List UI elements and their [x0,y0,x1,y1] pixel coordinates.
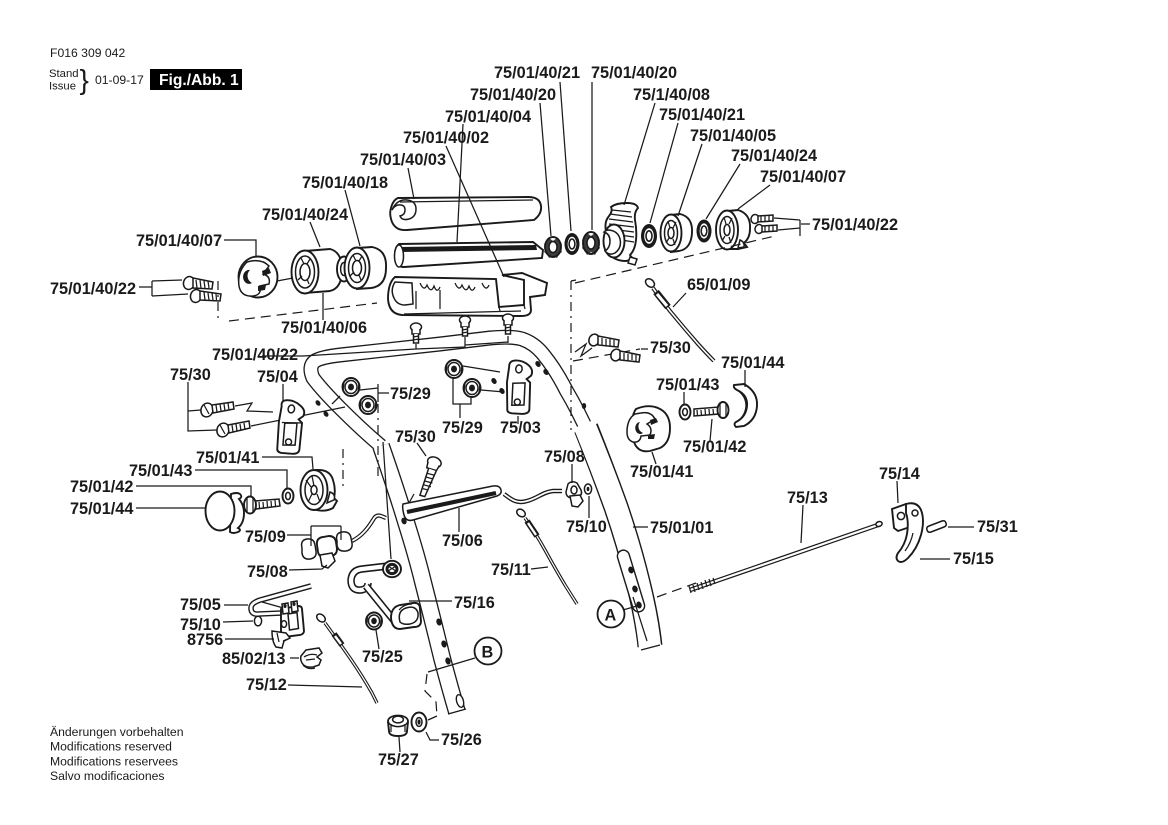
svg-text:A: A [605,607,617,625]
svg-text:75/01/40/21: 75/01/40/21 [494,64,580,82]
svg-text:75/01/43: 75/01/43 [129,462,192,480]
svg-text:75/08: 75/08 [544,448,585,466]
svg-text:75/01/40/22: 75/01/40/22 [50,280,136,298]
svg-text:75/11: 75/11 [491,561,531,579]
svg-text:75/30: 75/30 [650,339,691,357]
svg-text:75/01/40/20: 75/01/40/20 [591,64,677,82]
svg-text:85/02/13: 85/02/13 [222,650,285,668]
svg-text:75/01/40/02: 75/01/40/02 [403,129,489,147]
svg-text:75/01/40/07: 75/01/40/07 [136,232,222,250]
svg-text:75/01/40/24: 75/01/40/24 [262,206,348,224]
svg-text:75/16: 75/16 [454,594,495,612]
svg-text:75/01/40/07: 75/01/40/07 [760,168,846,186]
svg-text:75/15: 75/15 [953,550,994,568]
svg-text:75/14: 75/14 [879,465,920,483]
svg-text:}: } [80,64,89,95]
svg-text:75/01/01: 75/01/01 [650,519,713,537]
svg-text:75/01/40/05: 75/01/40/05 [690,127,776,145]
svg-text:75/04: 75/04 [257,368,298,386]
svg-text:75/01/43: 75/01/43 [656,376,719,394]
svg-text:75/03: 75/03 [500,419,541,437]
svg-text:75/01/44: 75/01/44 [70,500,133,518]
svg-text:75/12: 75/12 [246,676,287,694]
svg-text:75/29: 75/29 [442,419,483,437]
svg-text:75/1/40/08: 75/1/40/08 [633,86,710,104]
svg-text:75/10: 75/10 [566,518,607,536]
svg-text:75/01/40/22: 75/01/40/22 [212,346,298,364]
svg-text:75/27: 75/27 [378,751,419,769]
svg-text:75/01/40/18: 75/01/40/18 [302,174,388,192]
svg-text:75/25: 75/25 [362,648,403,666]
svg-text:Modifications reservees: Modifications reservees [50,754,178,768]
svg-text:75/08: 75/08 [247,563,288,581]
svg-text:Stand: Stand [49,68,79,80]
svg-text:75/01/40/21: 75/01/40/21 [659,106,745,124]
svg-text:75/01/40/24: 75/01/40/24 [731,147,817,165]
svg-text:75/01/41: 75/01/41 [196,449,259,467]
svg-text:75/01/40/20: 75/01/40/20 [470,86,556,104]
svg-text:75/26: 75/26 [441,731,482,749]
svg-text:F016 309 042: F016 309 042 [50,46,125,60]
svg-text:75/01/40/04: 75/01/40/04 [445,108,531,126]
svg-text:Salvo modificaciones: Salvo modificaciones [50,769,164,783]
svg-text:01-09-17: 01-09-17 [95,73,144,87]
svg-text:75/30: 75/30 [395,428,436,446]
svg-text:75/01/40/22: 75/01/40/22 [812,216,898,234]
svg-text:75/01/42: 75/01/42 [70,478,133,496]
svg-text:Änderungen vorbehalten: Änderungen vorbehalten [50,725,184,739]
svg-text:75/06: 75/06 [442,532,483,550]
svg-text:75/01/44: 75/01/44 [721,354,784,372]
svg-text:Issue: Issue [49,81,76,93]
svg-text:Fig./Abb. 1: Fig./Abb. 1 [159,72,239,89]
svg-text:75/01/42: 75/01/42 [683,438,746,456]
svg-text:75/13: 75/13 [787,489,828,507]
svg-text:75/05: 75/05 [180,596,221,614]
svg-text:65/01/09: 65/01/09 [687,276,750,294]
svg-text:75/30: 75/30 [170,366,211,384]
svg-text:B: B [482,644,494,662]
svg-text:75/29: 75/29 [390,385,431,403]
svg-text:75/31: 75/31 [977,518,1018,536]
svg-text:75/01/40/06: 75/01/40/06 [281,319,367,337]
svg-text:75/09: 75/09 [245,528,286,546]
svg-text:8756: 8756 [187,631,223,649]
svg-text:75/01/40/03: 75/01/40/03 [360,151,446,169]
svg-text:Modifications reserved: Modifications reserved [50,740,172,754]
svg-text:75/01/41: 75/01/41 [630,463,693,481]
